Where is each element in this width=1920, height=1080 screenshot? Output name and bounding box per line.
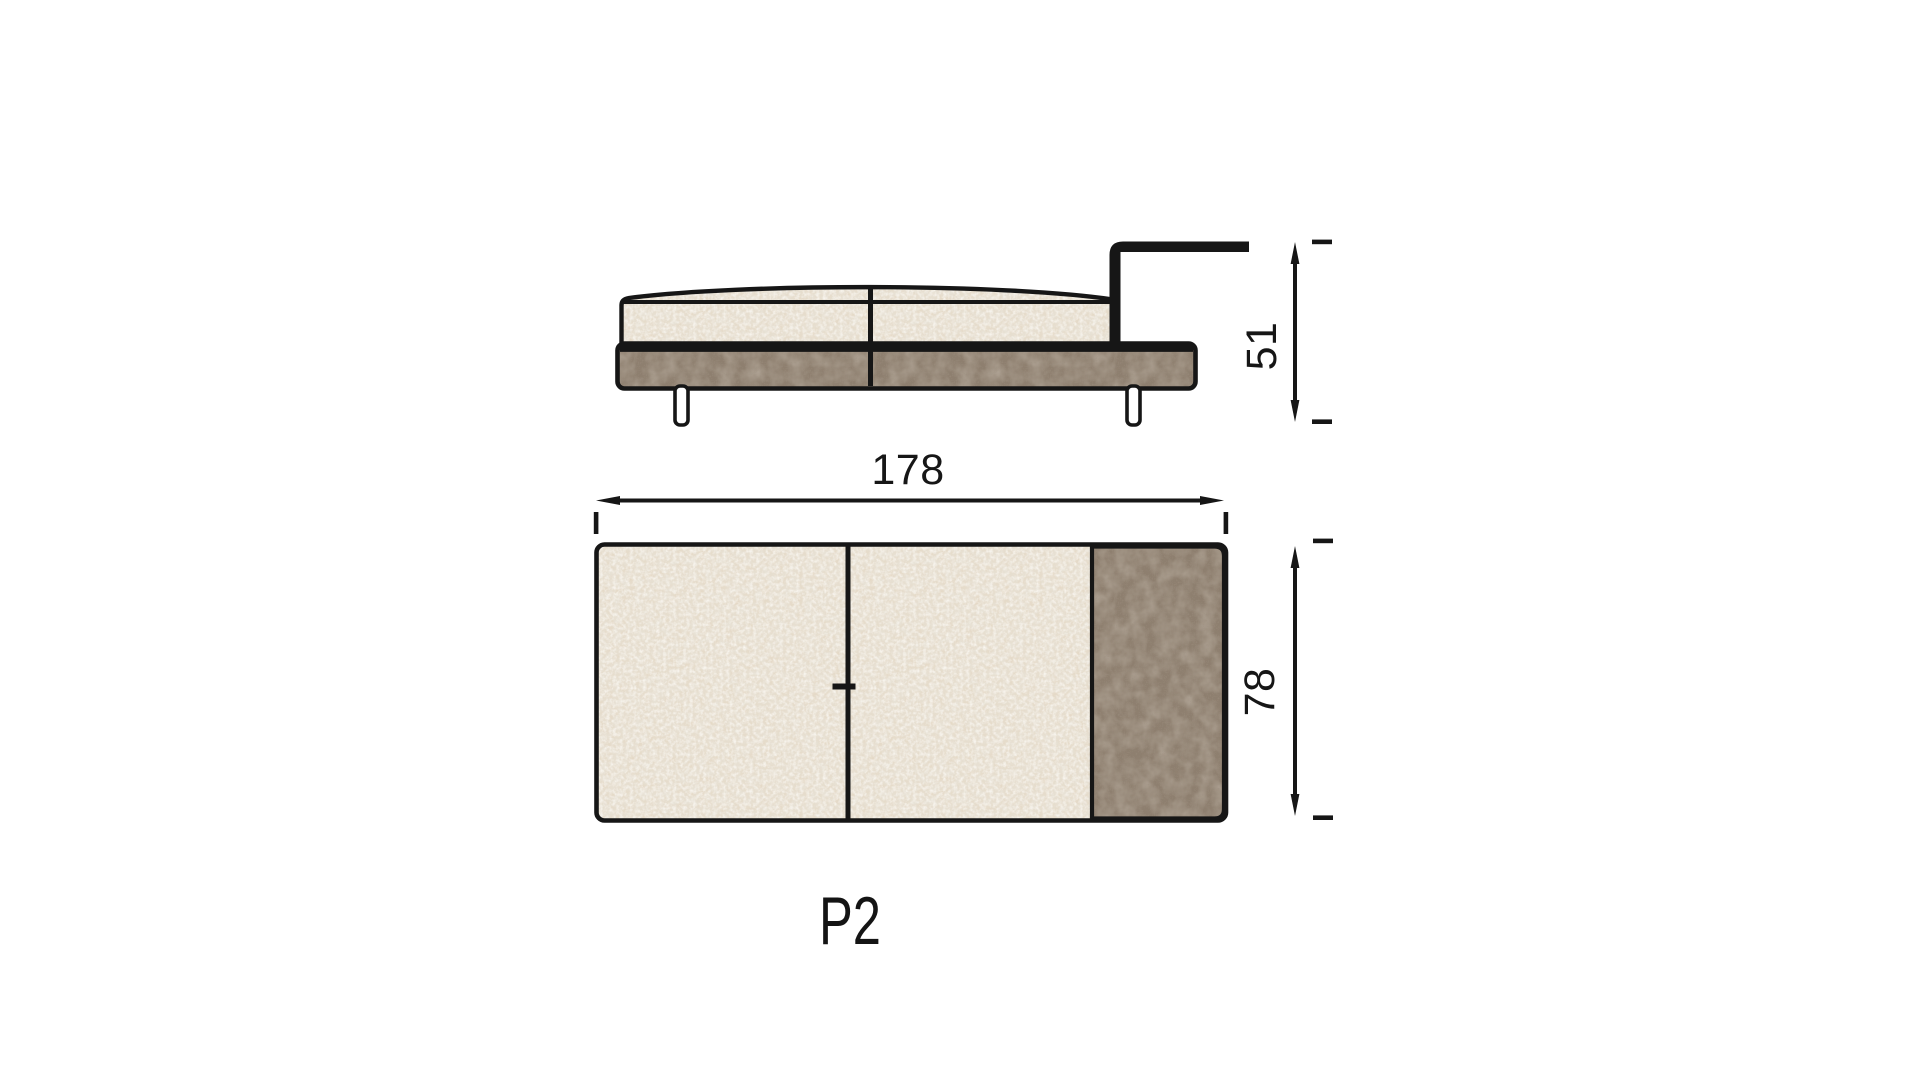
dim-width-arrowhead-left <box>596 496 620 505</box>
dim-width-tick-left <box>594 512 599 534</box>
dim-width: 178 <box>594 446 1228 534</box>
mattress-side-profile <box>622 287 1114 344</box>
dim-width-label: 178 <box>871 446 944 494</box>
leg-left <box>675 386 688 425</box>
dim-depth: 78 <box>1236 539 1333 820</box>
top-view <box>597 545 1227 821</box>
dim-height-label: 51 <box>1238 322 1286 371</box>
dim-depth-arrowhead-top <box>1291 546 1300 568</box>
leg-right <box>1127 386 1140 425</box>
dim-height-tick-top <box>1312 240 1332 245</box>
dim-width-tick-right <box>1224 512 1229 534</box>
dim-height-tick-bottom <box>1312 419 1332 424</box>
topview-center-mark <box>833 684 856 690</box>
dim-height-arrowhead-bottom <box>1291 400 1300 422</box>
product-code-label: P2 <box>819 883 881 959</box>
dim-height-arrowhead-top <box>1291 242 1300 264</box>
topview-bench-leather <box>1092 547 1224 819</box>
dim-depth-label: 78 <box>1236 668 1284 717</box>
dim-depth-tick-bottom <box>1313 815 1333 820</box>
dim-height: 51 <box>1238 240 1332 424</box>
dim-depth-arrowhead-bottom <box>1291 794 1300 816</box>
furniture-dimension-drawing: 51 178 78 P2 <box>0 0 1920 1080</box>
headboard-bracket <box>1110 242 1250 352</box>
side-view <box>618 242 1250 426</box>
dim-depth-tick-top <box>1313 539 1333 544</box>
dim-width-arrowhead-right <box>1200 496 1224 505</box>
dimension-sheet: 51 178 78 P2 <box>0 0 1920 1080</box>
